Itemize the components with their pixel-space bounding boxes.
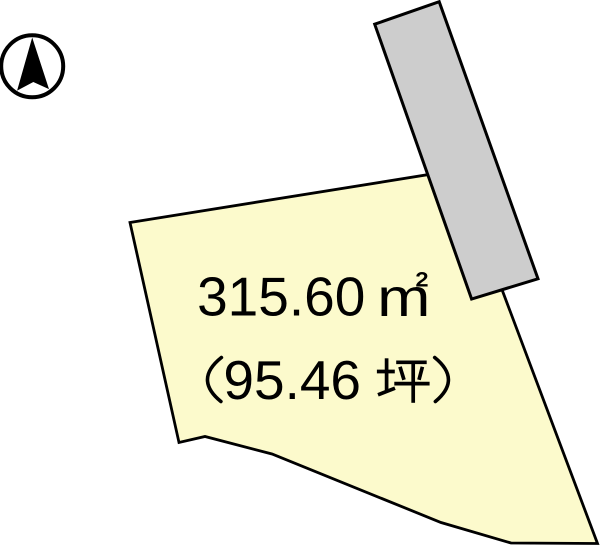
svg-text:95.46: 95.46 bbox=[223, 349, 361, 411]
svg-text:315.60: 315.60 bbox=[197, 266, 365, 328]
svg-text:2: 2 bbox=[416, 269, 429, 291]
